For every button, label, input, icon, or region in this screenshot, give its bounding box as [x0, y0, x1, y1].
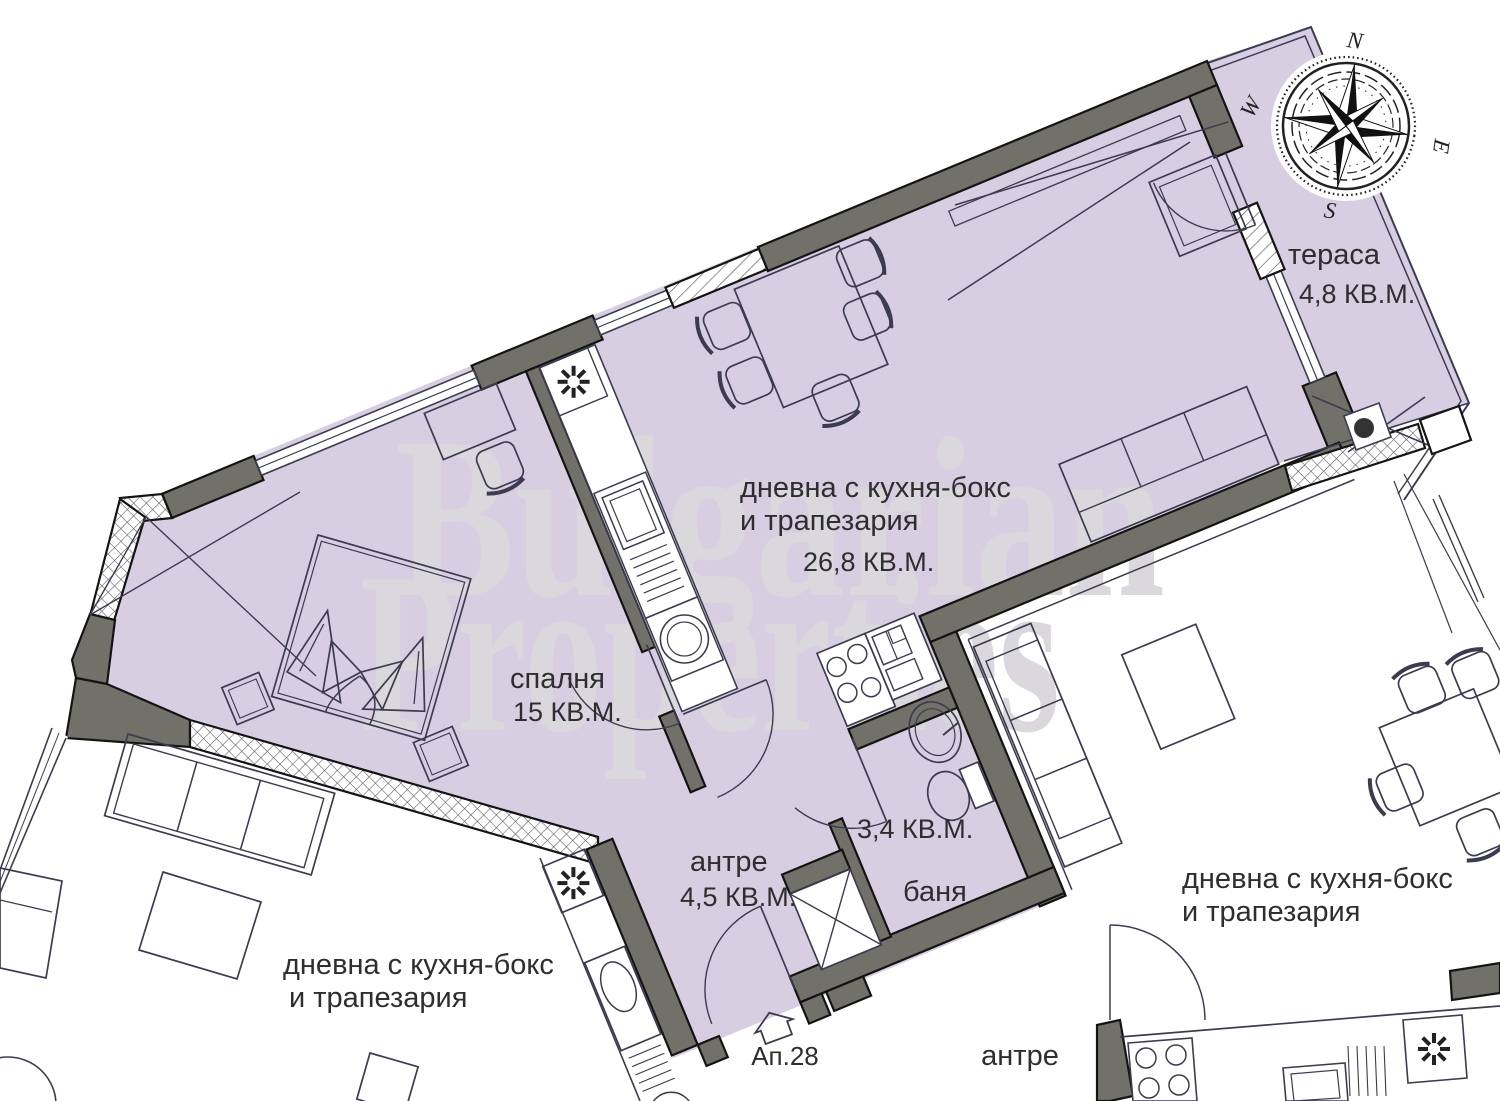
- svg-text:антре: антре: [981, 1040, 1059, 1072]
- svg-text:Ап.28: Ап.28: [751, 1041, 819, 1071]
- svg-text:26,8 КВ.М.: 26,8 КВ.М.: [803, 547, 934, 577]
- svg-text:3,4 КВ.М.: 3,4 КВ.М.: [857, 814, 973, 844]
- svg-text:дневна с кухня-бокс: дневна с кухня-бокс: [1182, 863, 1453, 895]
- svg-text:и трапезария: и трапезария: [289, 982, 467, 1014]
- svg-text:и трапезария: и трапезария: [1182, 896, 1360, 928]
- svg-text:тераса: тераса: [1288, 239, 1381, 271]
- svg-text:и трапезария: и трапезария: [740, 505, 918, 537]
- svg-text:антре: антре: [690, 846, 768, 878]
- svg-text:дневна с кухня-бокс: дневна с кухня-бокс: [740, 472, 1011, 504]
- svg-text:дневна с кухня-бокс: дневна с кухня-бокс: [283, 949, 554, 981]
- svg-text:спалня: спалня: [510, 663, 605, 695]
- svg-text:баня: баня: [903, 876, 967, 908]
- svg-text:4,5 КВ.М.: 4,5 КВ.М.: [680, 882, 796, 912]
- svg-text:4,8 КВ.М.: 4,8 КВ.М.: [1299, 279, 1415, 309]
- svg-text:15 КВ.М.: 15 КВ.М.: [513, 697, 622, 727]
